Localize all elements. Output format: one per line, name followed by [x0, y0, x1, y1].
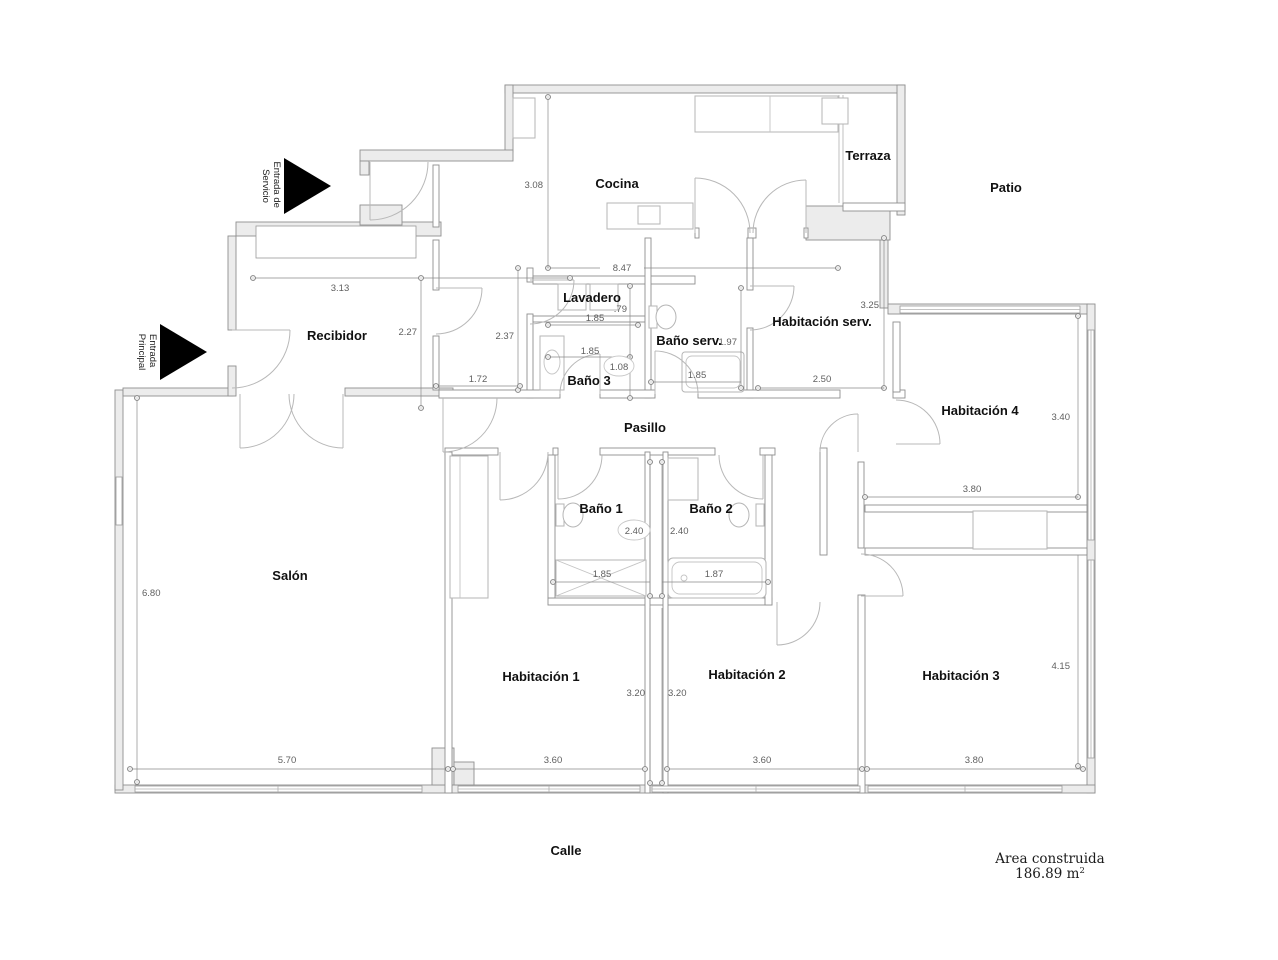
dim-bano2-depth: 2.40: [670, 526, 689, 537]
dim-banoserv-width: 1.85: [688, 370, 707, 381]
dim-salon-depth: 6.80: [142, 588, 161, 599]
dim-habserv-depth: 3.25: [861, 300, 880, 311]
exterior-label-patio: Patio: [990, 180, 1022, 195]
exterior-label-calle: Calle: [550, 843, 581, 858]
dim-bano3-width: 1.85: [581, 346, 600, 357]
room-label-lavadero: Lavadero: [563, 290, 621, 305]
kitchen-counter: [695, 96, 838, 132]
room-label-bano-serv: Baño serv.: [656, 333, 722, 348]
dim-hab1-width: 3.60: [544, 755, 563, 766]
service-entrance-label: Entrada de Servicio: [260, 161, 282, 210]
footer: Area construida 186.89 m2: [994, 851, 1104, 882]
main-entrance-arrow-icon: [160, 324, 207, 380]
room-label-recibidor: Recibidor: [307, 328, 367, 343]
dim-hab1-depth: 3.20: [627, 688, 646, 699]
main-entrance-label: Entrada Principal: [136, 334, 158, 370]
dim-salon-width: 5.70: [278, 755, 297, 766]
dim-hab3-depth: 4.15: [1052, 661, 1071, 672]
room-label-habitacion-3: Habitación 3: [922, 668, 999, 683]
dim-hab2-depth: 3.20: [668, 688, 687, 699]
interior-walls: [433, 165, 1087, 793]
dim-recibidor-depth: 2.27: [399, 327, 418, 338]
dim-bano1-depth: 2.40: [625, 526, 644, 537]
dim-lavadero-width: 1.85: [586, 313, 605, 324]
room-label-cocina: Cocina: [595, 176, 639, 191]
toilet-bowl: [656, 305, 676, 329]
dim-hab4-depth: 3.40: [1052, 412, 1071, 423]
floor-plan-page: 8.47 3.08 3.13 2.27 2.37 1.72 1.85 .79 1…: [0, 0, 1278, 960]
dim-hab2-width: 3.60: [753, 755, 772, 766]
room-label-bano-2: Baño 2: [689, 501, 732, 516]
room-label-habitacion-1: Habitación 1: [502, 669, 579, 684]
service-entrance-arrow-icon: [284, 158, 331, 214]
dim-habserv-width: 2.50: [813, 374, 832, 385]
dim-bano2-width: 1.87: [705, 569, 724, 580]
dim-bano1-width: 1.85: [593, 569, 612, 580]
room-label-bano-1: Baño 1: [579, 501, 622, 516]
dim-cocina-width: 8.47: [613, 263, 632, 274]
room-label-bano-3: Baño 3: [567, 373, 610, 388]
dim-hall-depth: 2.37: [496, 331, 515, 342]
closet: [973, 511, 1047, 549]
dim-hab4-width: 3.80: [963, 484, 982, 495]
dim-hall-width: 1.72: [469, 374, 488, 385]
closet: [450, 456, 488, 598]
area-value: 186.89 m2: [1015, 866, 1085, 882]
room-label-habitacion-2: Habitación 2: [708, 667, 785, 682]
area-label: Area construida: [994, 851, 1104, 867]
dim-lavadero-depth: .79: [614, 304, 627, 315]
dim-hab3-width: 3.80: [965, 755, 984, 766]
toilet-tank: [756, 504, 764, 526]
room-label-terraza: Terraza: [845, 148, 891, 163]
dim-bano3-depth: 1.08: [610, 362, 629, 373]
room-label-salon: Salón: [272, 568, 307, 583]
room-label-pasillo: Pasillo: [624, 420, 666, 435]
floor-plan-drawing: 8.47 3.08 3.13 2.27 2.37 1.72 1.85 .79 1…: [0, 0, 1278, 960]
vanity: [668, 458, 698, 500]
room-label-habitacion-4: Habitación 4: [941, 403, 1019, 418]
room-label-habitacion-serv: Habitación serv.: [772, 314, 871, 329]
dim-recibidor-width: 3.13: [331, 283, 350, 294]
dim-cocina-depth: 3.08: [525, 180, 544, 191]
